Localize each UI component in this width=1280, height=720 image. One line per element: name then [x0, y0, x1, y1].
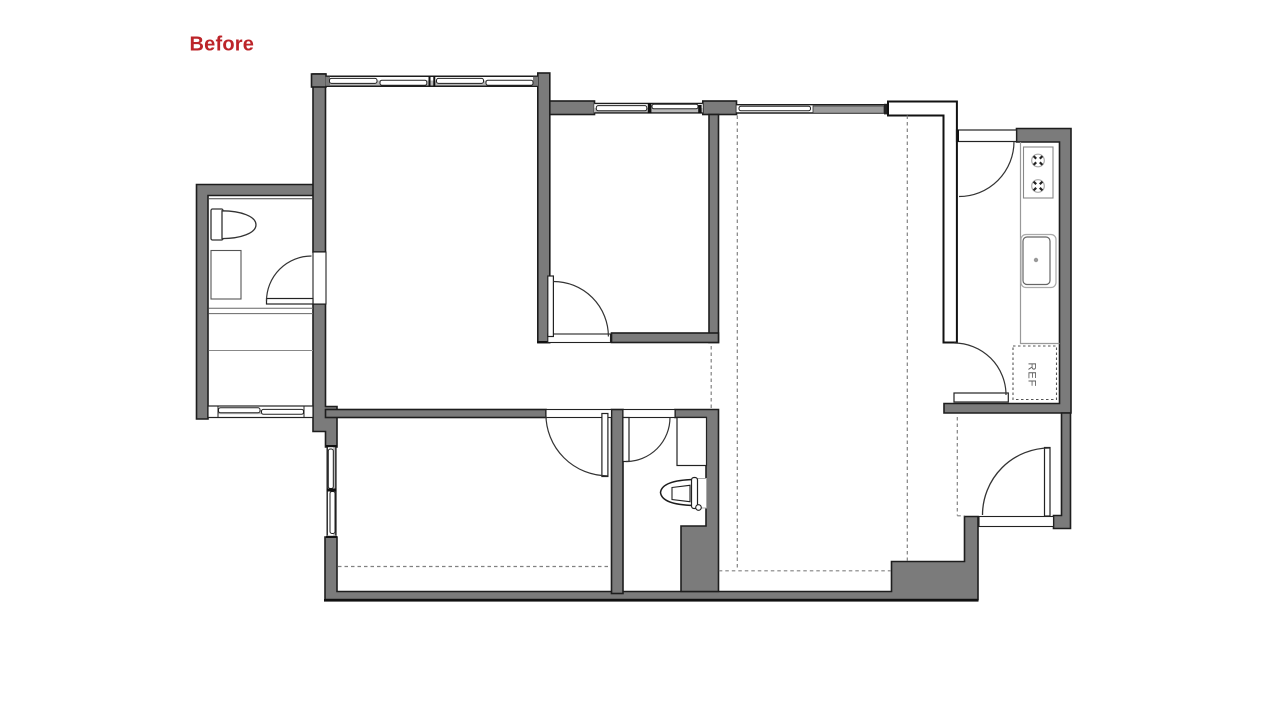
svg-text:Before: Before: [190, 34, 255, 56]
svg-text:REF: REF: [1026, 363, 1038, 388]
